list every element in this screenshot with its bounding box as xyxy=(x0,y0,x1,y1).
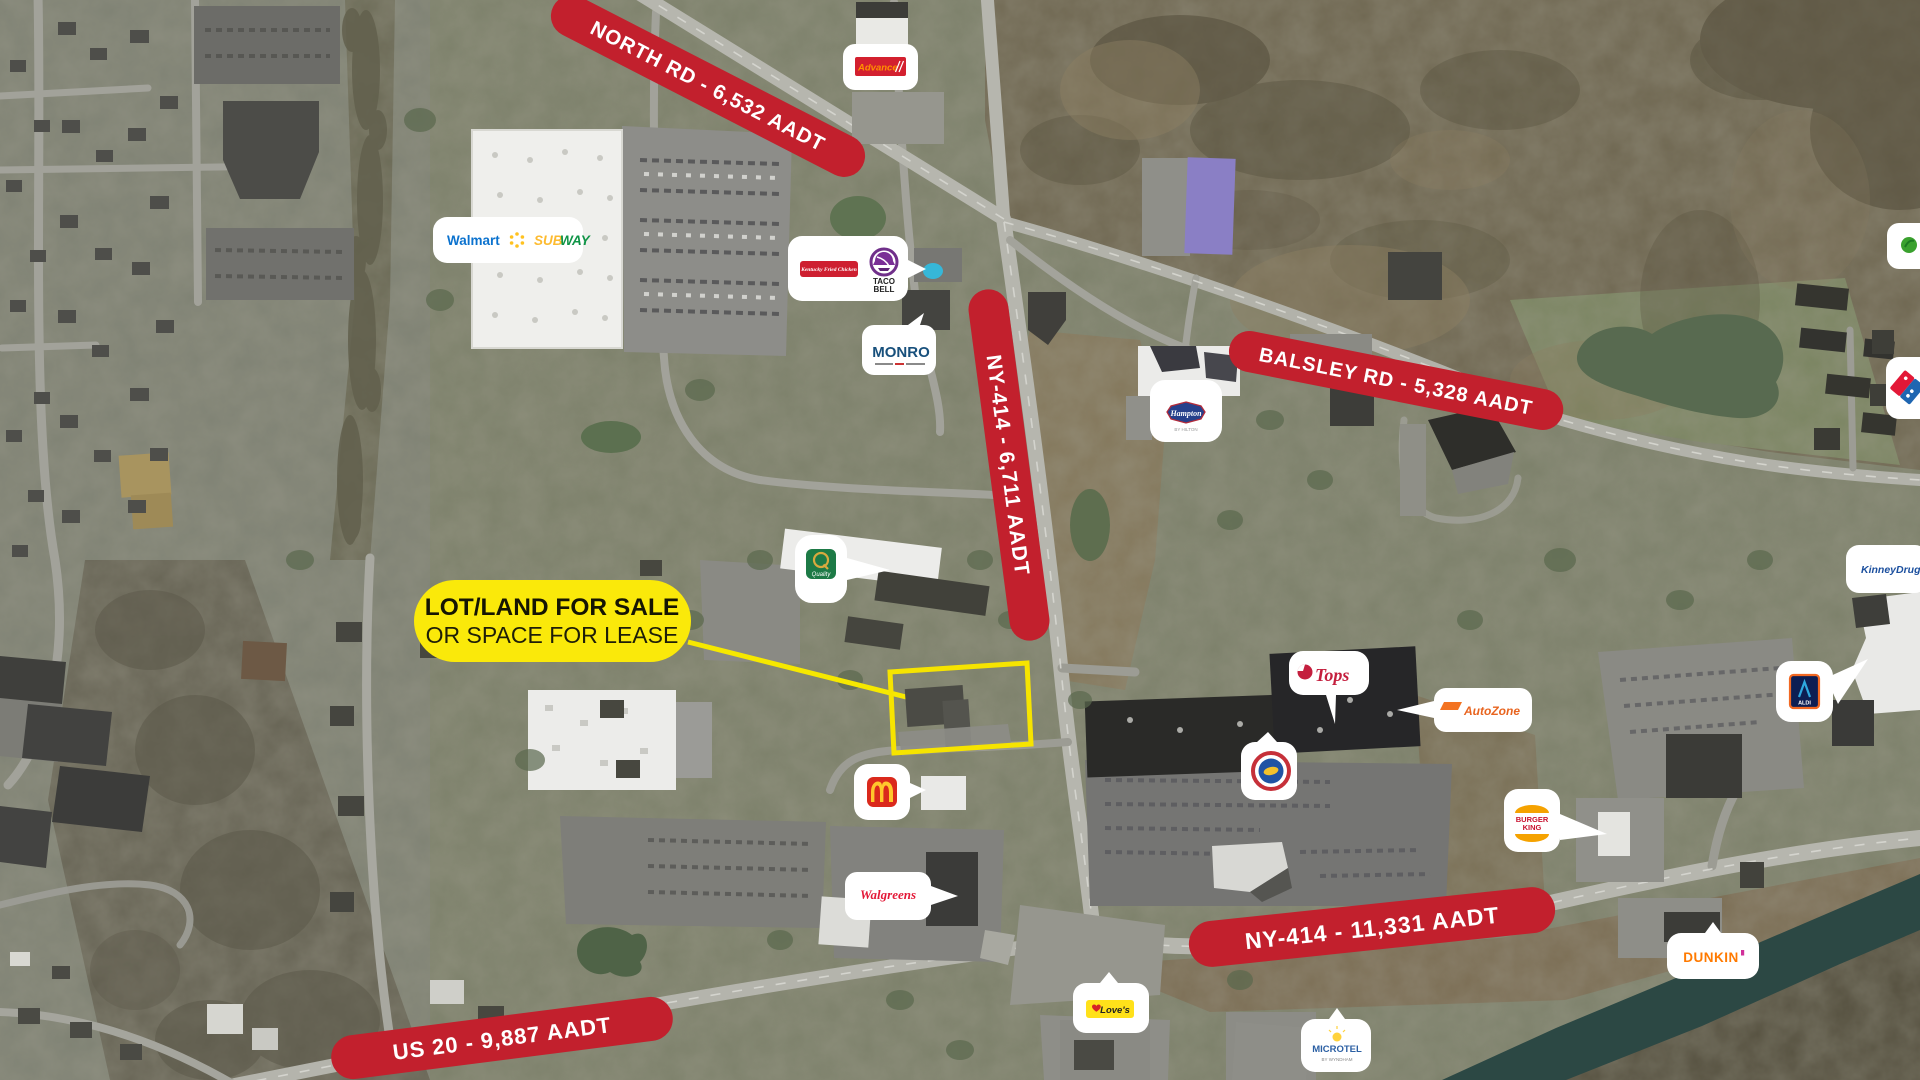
svg-text:BY WYNDHAM: BY WYNDHAM xyxy=(1322,1057,1353,1062)
svg-text:Love's: Love's xyxy=(1100,1005,1130,1016)
svg-text:LOT/LAND FOR SALE: LOT/LAND FOR SALE xyxy=(425,594,680,621)
svg-text:Advance: Advance xyxy=(857,63,898,74)
svg-text:MICROTEL: MICROTEL xyxy=(1312,1044,1362,1055)
svg-text:SUB: SUB xyxy=(534,233,563,248)
svg-text:Hampton: Hampton xyxy=(1169,409,1202,418)
svg-text:AutoZone: AutoZone xyxy=(1463,704,1520,718)
svg-text:Tops: Tops xyxy=(1315,665,1349,685)
svg-text:Kentucky Fried Chicken: Kentucky Fried Chicken xyxy=(800,267,857,273)
svg-text:KING: KING xyxy=(1523,823,1542,832)
svg-text:BELL: BELL xyxy=(874,285,895,294)
svg-text:OR SPACE FOR LEASE: OR SPACE FOR LEASE xyxy=(426,622,679,648)
svg-text:MONRO: MONRO xyxy=(872,344,930,361)
svg-text:BY HILTON: BY HILTON xyxy=(1174,427,1197,432)
svg-text:Walmart: Walmart xyxy=(447,233,500,248)
svg-text:Quality: Quality xyxy=(812,572,832,578)
svg-text:Walgreens: Walgreens xyxy=(860,887,916,902)
svg-text:KinneyDrugs: KinneyDrugs xyxy=(1861,564,1920,576)
svg-text:ALDI: ALDI xyxy=(1798,701,1811,707)
svg-text:WAY: WAY xyxy=(560,233,592,248)
svg-text:DUNKIN: DUNKIN xyxy=(1683,950,1739,965)
